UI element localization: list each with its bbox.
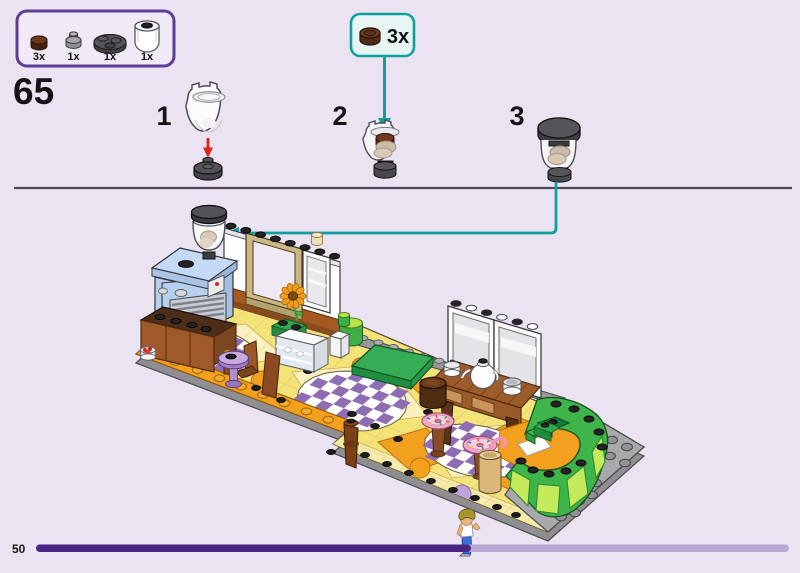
svg-text:1x: 1x [104,51,117,63]
svg-text:3: 3 [509,101,524,131]
svg-text:65: 65 [13,71,54,112]
svg-text:50: 50 [12,542,26,556]
svg-text:1: 1 [156,101,171,131]
svg-text:3x: 3x [387,26,409,48]
svg-text:1x: 1x [67,51,80,63]
svg-text:3x: 3x [33,51,46,63]
svg-text:1x: 1x [141,51,154,63]
svg-text:2: 2 [332,101,347,131]
